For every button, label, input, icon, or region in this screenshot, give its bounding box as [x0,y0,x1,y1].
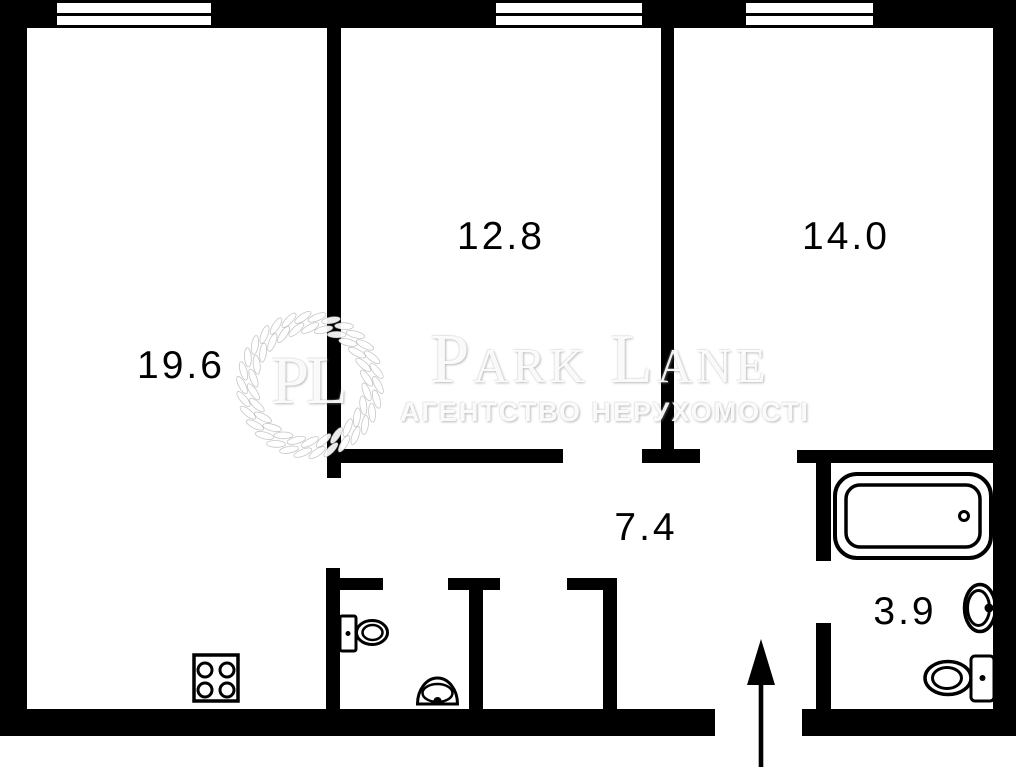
toilet-icon [922,653,996,705]
watermark-tagline: АГЕНТСТВО НЕРУХОМОСТІ [400,399,800,426]
room-area-label-bedroom: 12.8 [421,212,581,262]
window-icon [746,3,873,25]
toilet-icon [338,613,392,655]
wall-outer-left [0,0,27,736]
wall-bedrooms-divider [661,28,674,449]
window-icon [57,3,211,25]
wall-outer-bottom-right [802,709,1016,736]
room-area-label-bedroom-2: 14.0 [766,212,926,262]
wall-outer-bottom-left [0,709,715,736]
wall-wc-right-vertical [603,578,617,709]
bathtub-icon [833,472,993,560]
watermark-monogram: PL [253,346,363,414]
wash-basin-icon [414,675,461,707]
room-area-label-living-room: 19.6 [101,341,261,391]
wall-bathroom-top [797,450,993,463]
room-area-label-bathroom: 3.9 [825,587,985,637]
wall-hallway-left [341,449,563,463]
wall-bathroom-left-upper [816,463,831,561]
wall-wc-left-vertical [326,568,340,709]
watermark-brand-name: Park Lane [395,325,805,395]
wall-living-bedroom-divider [327,28,341,478]
floor-plan: 19.6 12.8 14.0 7.4 3.9 PL Park Lane АГЕН… [0,0,1024,772]
room-area-label-hallway: 7.4 [566,503,726,553]
window-icon [496,3,642,25]
wall-outer-right [993,0,1016,736]
wall-wc-left-stub [340,578,383,590]
wall-hallway-mid [642,449,700,463]
wall-wc-middle-vertical [469,578,483,709]
stove-icon [192,653,240,703]
entrance-arrow-icon [744,638,778,768]
